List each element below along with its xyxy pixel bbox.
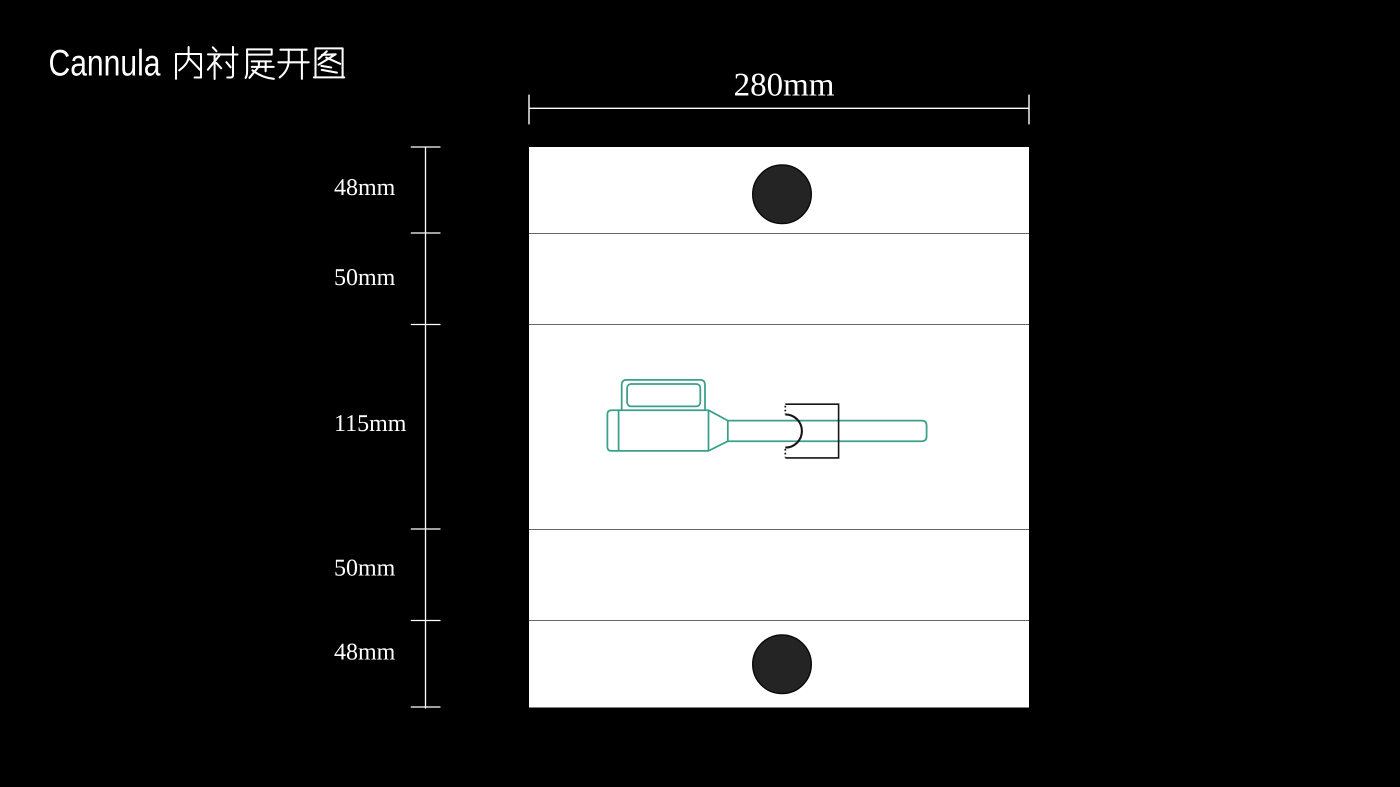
svg-text:280mm: 280mm [734, 67, 835, 103]
svg-text:Cannula: Cannula [49, 43, 161, 84]
svg-text:115mm: 115mm [334, 411, 407, 437]
svg-text:48mm: 48mm [334, 175, 396, 201]
svg-text:50mm: 50mm [334, 556, 396, 582]
svg-text:50mm: 50mm [334, 265, 396, 291]
svg-text:48mm: 48mm [334, 640, 396, 666]
